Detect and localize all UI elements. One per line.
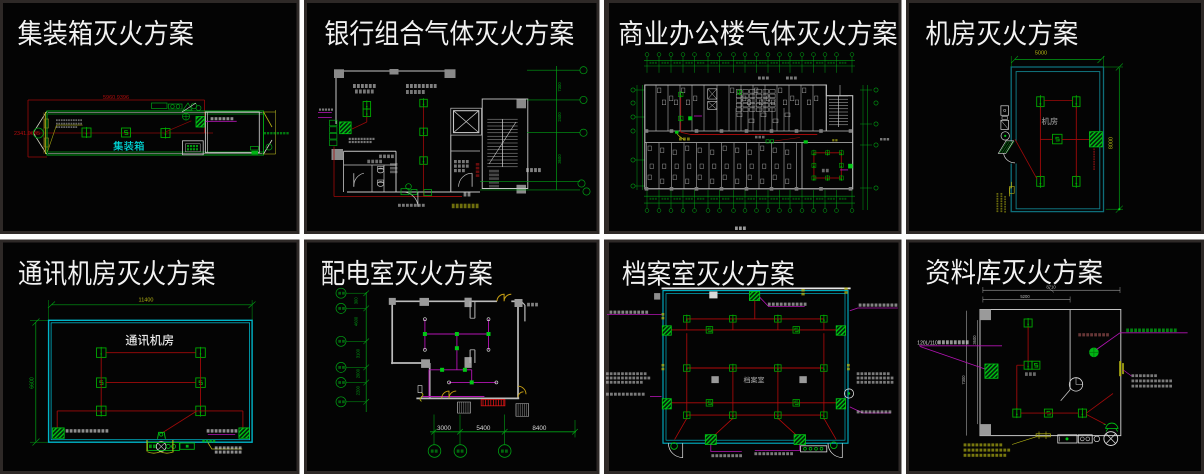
- svg-text:5200: 5200: [1020, 294, 1030, 299]
- svg-text:2400: 2400: [557, 112, 562, 122]
- svg-text:11400: 11400: [139, 298, 154, 304]
- svg-text:3000: 3000: [437, 425, 452, 432]
- svg-text:2000: 2000: [356, 368, 361, 378]
- svg-text:2200: 2200: [356, 385, 361, 395]
- svg-text:5400: 5400: [476, 425, 491, 432]
- svg-text:300: 300: [354, 297, 359, 305]
- svg-text:8400: 8400: [532, 425, 547, 432]
- svg-text:8000: 8000: [1109, 137, 1115, 149]
- svg-text:7300: 7300: [557, 82, 562, 92]
- svg-text:3600: 3600: [557, 154, 562, 164]
- svg-text:3100: 3100: [356, 348, 361, 358]
- svg-text:6600: 6600: [30, 377, 36, 389]
- svg-text:5000: 5000: [1035, 51, 1047, 57]
- svg-text:2341.0685: 2341.0685: [14, 131, 40, 137]
- svg-text:4600: 4600: [354, 316, 359, 326]
- svg-text:7300: 7300: [961, 375, 966, 385]
- svg-text:8710: 8710: [1046, 284, 1056, 289]
- svg-text:5960.9396: 5960.9396: [103, 95, 129, 101]
- svg-text:3600: 3600: [972, 335, 977, 345]
